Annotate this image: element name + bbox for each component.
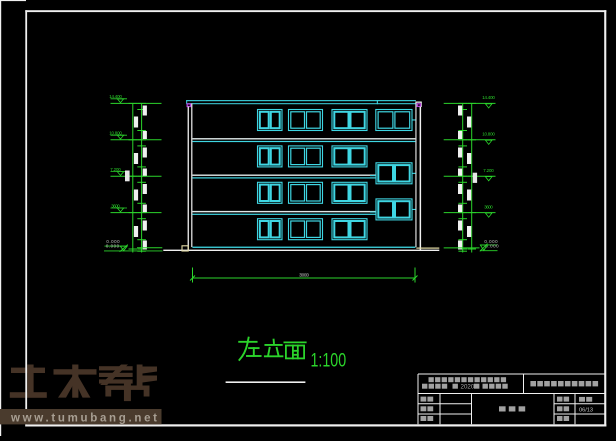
svg-text:06/13: 06/13 xyxy=(579,407,593,413)
svg-text:2020: 2020 xyxy=(461,384,475,391)
svg-text:30000: 30000 xyxy=(299,273,309,278)
svg-text:10.800: 10.800 xyxy=(482,132,495,137)
svg-text:7.200: 7.200 xyxy=(483,168,494,173)
svg-text:3600: 3600 xyxy=(484,204,493,209)
svg-text:14.400: 14.400 xyxy=(482,95,495,100)
svg-text:1:100: 1:100 xyxy=(311,349,347,371)
svg-text:0.000: 0.000 xyxy=(106,244,120,249)
